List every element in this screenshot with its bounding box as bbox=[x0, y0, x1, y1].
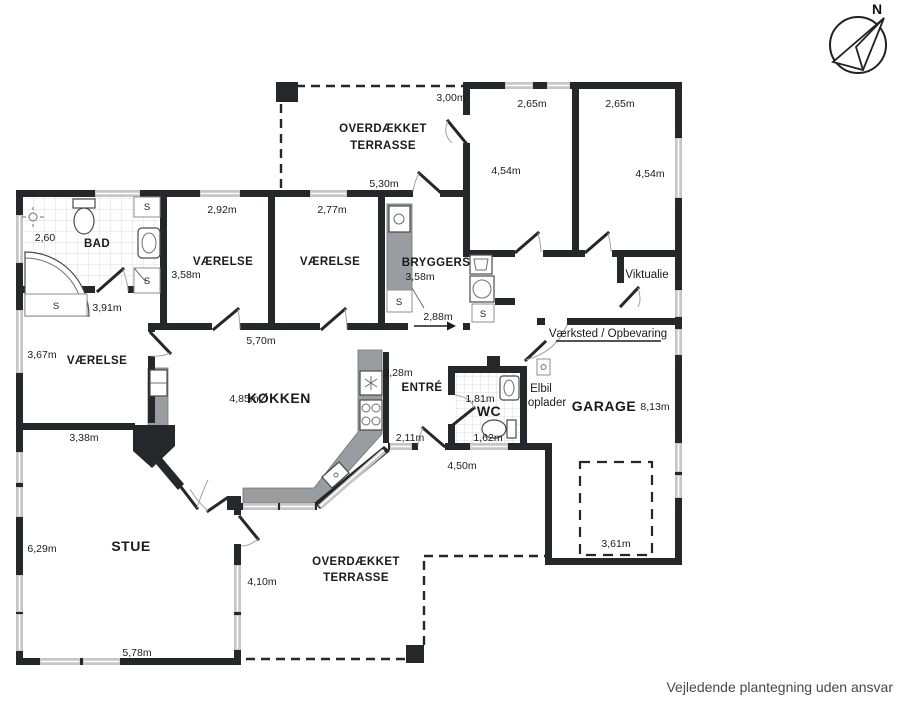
toilet-icon bbox=[73, 199, 95, 208]
utility-sink-icon bbox=[389, 206, 410, 232]
dim-entry-door: 2,11m bbox=[396, 432, 425, 444]
label-terrace-bottom-2: TERRASSE bbox=[323, 572, 389, 584]
label-entry: ENTRÉ bbox=[402, 381, 443, 394]
dim-bedroom3-height: 3,67m bbox=[27, 349, 56, 361]
dim-bathroom-hall: 3,91m bbox=[92, 302, 121, 314]
label-garage: GARAGE bbox=[572, 398, 636, 414]
label-living: STUE bbox=[111, 538, 150, 554]
dim-bathroom-shower: 2,60 bbox=[35, 232, 56, 244]
label-closet-utility: S bbox=[396, 297, 402, 308]
compass-north-label: N bbox=[872, 1, 882, 17]
label-closet-laundry: S bbox=[480, 309, 486, 320]
dim-bedroomr1-height: 4,54m bbox=[491, 165, 520, 177]
laundry-sink-icon bbox=[470, 255, 492, 274]
dim-living-east: 4,10m bbox=[247, 576, 276, 588]
dim-bedroomr1-width: 2,65m bbox=[517, 98, 546, 110]
label-closet-bad-top: S bbox=[144, 202, 150, 213]
dim-bedroom3-bottom: 3,38m bbox=[69, 432, 98, 444]
dim-wc-2: 1,62m bbox=[473, 432, 502, 444]
dim-bedroom2-width: 2,77m bbox=[317, 204, 346, 216]
label-bedroom3: VÆRELSE bbox=[67, 355, 127, 367]
canvas-background bbox=[0, 0, 900, 708]
ev-charger-icon bbox=[537, 359, 550, 375]
dim-bedroomr2-height: 4,54m bbox=[635, 168, 664, 180]
label-workshop: Værksted / Opbevaring bbox=[549, 328, 667, 340]
dim-terrace-top-width: 3,00m bbox=[436, 92, 465, 104]
terrace-post-bottom bbox=[406, 645, 424, 663]
dim-utility-height: 3,58m bbox=[405, 271, 434, 283]
dim-living-height: 6,29m bbox=[27, 543, 56, 555]
label-closet-bad-bottom: S bbox=[144, 276, 150, 287]
dim-garage-parking: 3,61m bbox=[601, 538, 630, 550]
label-utility: BRYGGERS bbox=[402, 257, 471, 269]
dim-entry-height: 3,28m bbox=[383, 367, 412, 379]
terrace-post-top bbox=[276, 82, 298, 102]
label-bedroom1: VÆRELSE bbox=[193, 256, 253, 268]
dim-bedroom1-height: 3,58m bbox=[171, 269, 200, 281]
dim-bedroomr2-width: 2,65m bbox=[605, 98, 634, 110]
label-closet-strip: S bbox=[53, 301, 59, 312]
dim-living-width: 5,78m bbox=[122, 647, 151, 659]
floor-plan-page: N OVERDÆKKET TERRASSE 3,00m 5,30m 2,65m … bbox=[0, 0, 900, 708]
dim-kitchen-top: 5,70m bbox=[246, 335, 275, 347]
label-wc: WC bbox=[477, 403, 501, 419]
floor-plan-drawing: N OVERDÆKKET TERRASSE 3,00m 5,30m 2,65m … bbox=[0, 0, 900, 708]
label-bedroom2: VÆRELSE bbox=[300, 256, 360, 268]
dim-terrace-top-bottom: 5,30m bbox=[369, 178, 398, 190]
label-terrace-top-1: OVERDÆKKET bbox=[339, 123, 427, 135]
dim-utility-bottom: 2,88m bbox=[423, 311, 452, 323]
label-terrace-top-2: TERRASSE bbox=[350, 140, 416, 152]
dim-entry-bottom: 4,50m bbox=[447, 460, 476, 472]
label-bathroom: BAD bbox=[84, 238, 110, 250]
dim-wc-1: 1,81m bbox=[465, 393, 494, 405]
disclaimer-text: Vejledende plantegning uden ansvar bbox=[666, 679, 893, 695]
label-ev-1: Elbil bbox=[530, 383, 552, 395]
dim-garage-length: 8,13m bbox=[640, 401, 669, 413]
label-terrace-bottom-1: OVERDÆKKET bbox=[312, 556, 400, 568]
dim-bedroom1-width: 2,92m bbox=[207, 204, 236, 216]
label-pantry: Viktualie bbox=[625, 269, 668, 281]
label-ev-2: oplader bbox=[528, 397, 567, 409]
dim-kitchen-width: 4,85m bbox=[229, 393, 258, 405]
